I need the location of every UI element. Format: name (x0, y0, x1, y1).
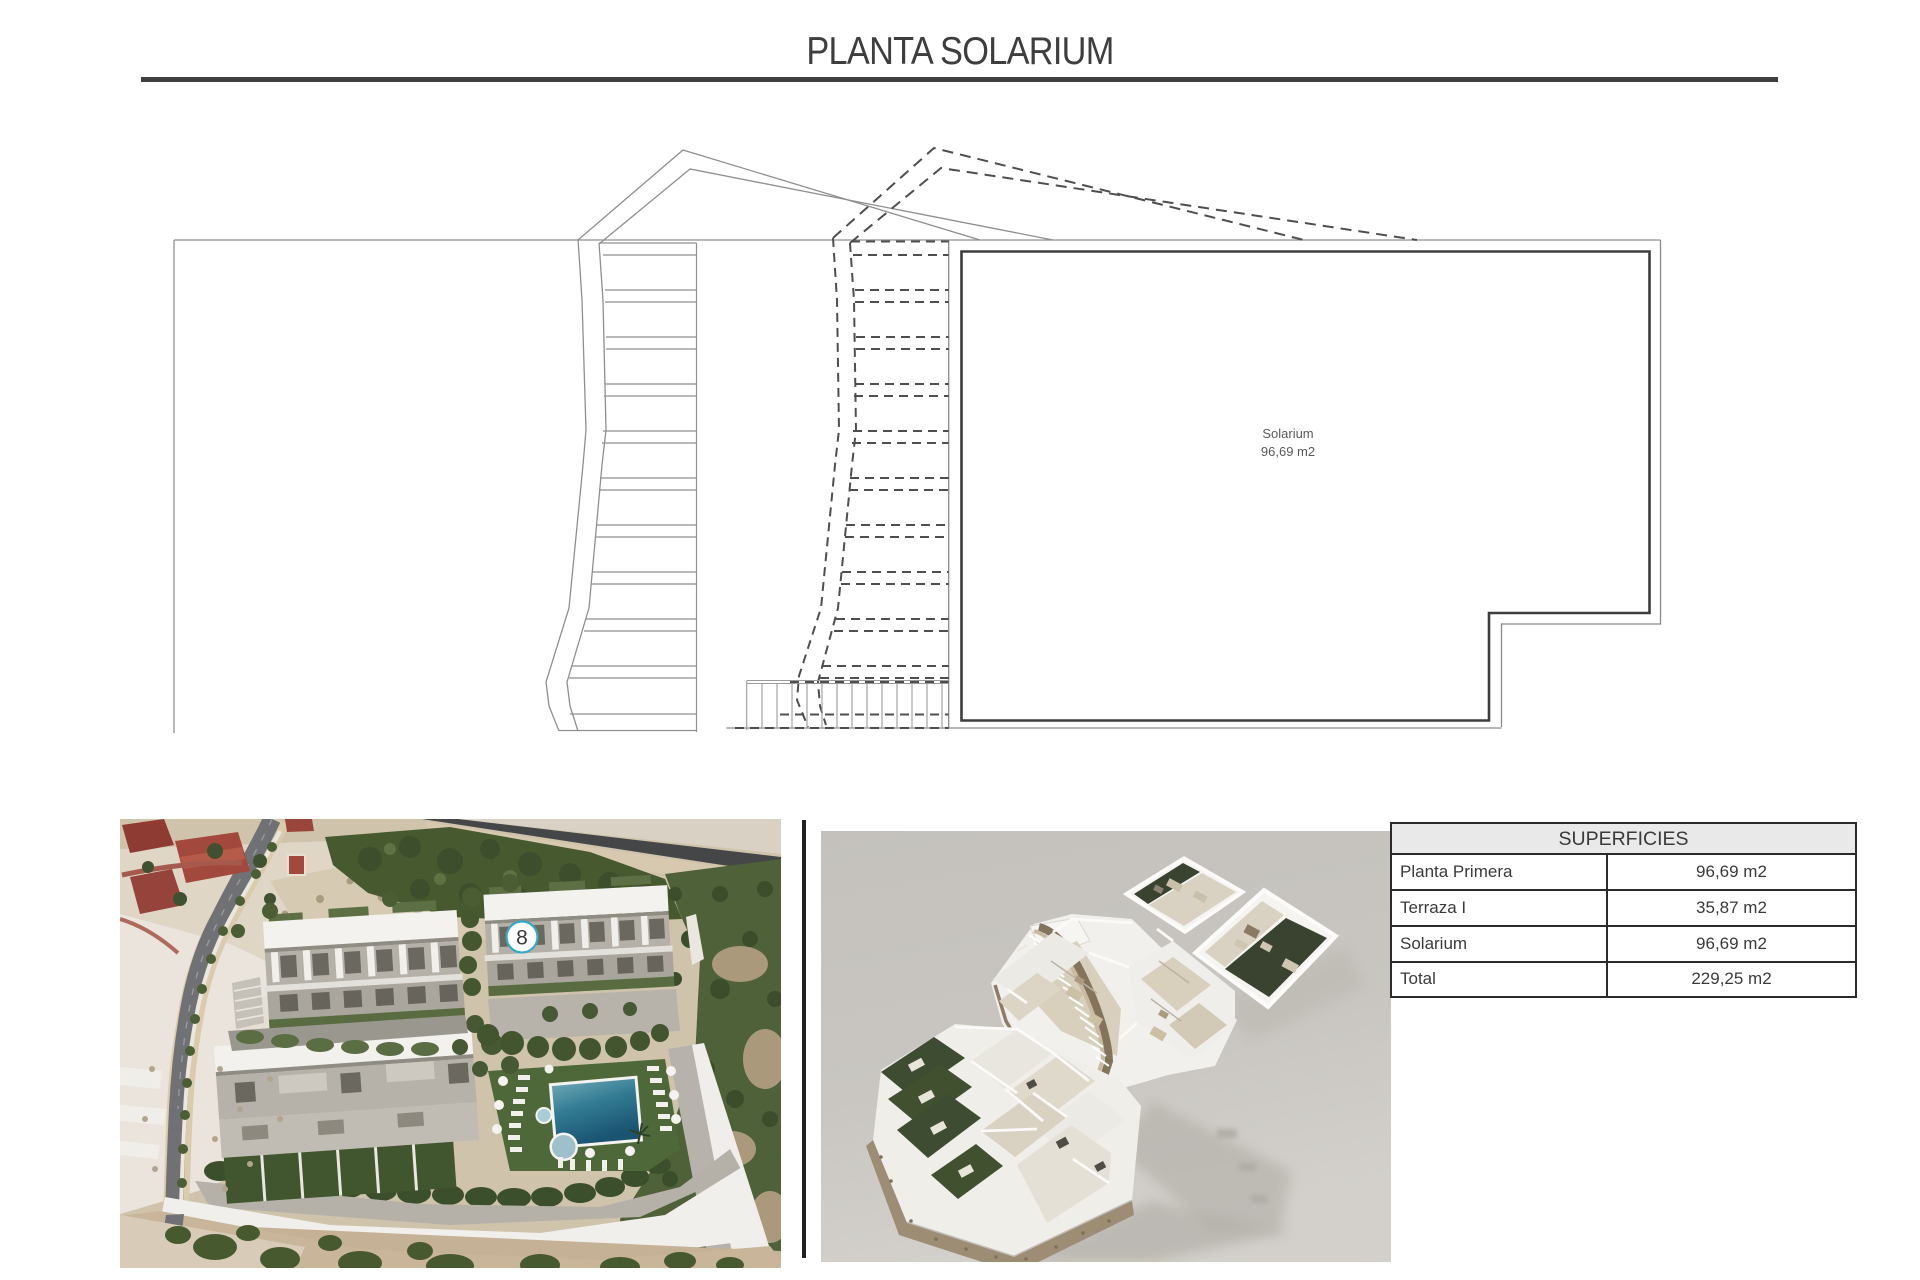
svg-text:8: 8 (516, 927, 528, 950)
svg-text:Solarium: Solarium (1262, 426, 1313, 441)
svg-text:96,69 m2: 96,69 m2 (1261, 444, 1315, 459)
